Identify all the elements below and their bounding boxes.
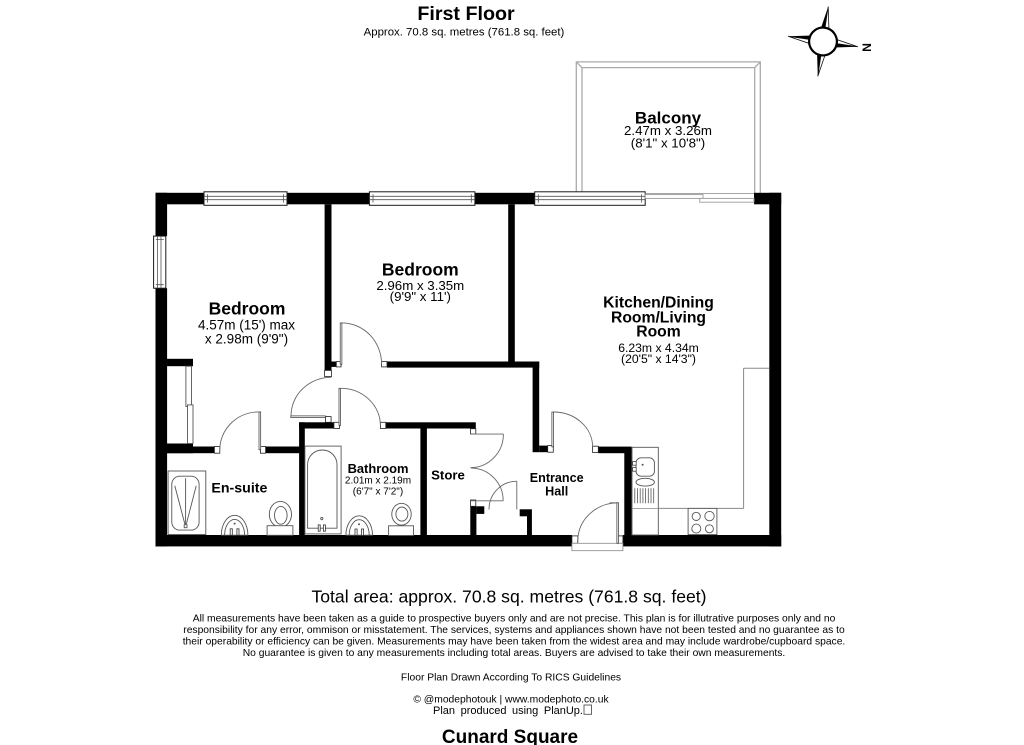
svg-text:Bathroom: Bathroom	[348, 461, 409, 476]
svg-text:All measurements have been tak: All measurements have been taken as a gu…	[193, 613, 836, 624]
svg-text:No guarantee is given to any m: No guarantee is given to any measurement…	[243, 648, 786, 659]
svg-text:En-suite: En-suite	[211, 481, 267, 497]
svg-text:Bedroom: Bedroom	[209, 299, 286, 319]
svg-text:Approx. 70.8 sq. metres (761.8: Approx. 70.8 sq. metres (761.8 sq. feet)	[364, 27, 565, 39]
svg-text:Entrance: Entrance	[530, 471, 584, 485]
svg-text:x 2.98m (9'9"): x 2.98m (9'9")	[205, 332, 288, 347]
svg-text:(9'9" x 11'): (9'9" x 11')	[390, 289, 451, 304]
svg-text:their operability or efficienc: their operability or efficiency can be g…	[183, 636, 846, 647]
svg-text:Store: Store	[431, 468, 465, 483]
svg-text:Plan produced using PlanUp.: Plan produced using PlanUp.	[433, 705, 583, 717]
svg-text:First Floor: First Floor	[417, 3, 515, 25]
svg-text:responsibility for any error,: responsibility for any error, ommison or…	[183, 625, 845, 636]
svg-text:© @modephotouk | www.modephoto: © @modephotouk | www.modephoto.co.uk	[413, 695, 609, 706]
svg-text:Bedroom: Bedroom	[382, 260, 459, 280]
svg-text:(20'5" x 14'3"): (20'5" x 14'3")	[621, 352, 696, 366]
svg-text:(6'7" x 7'2"): (6'7" x 7'2")	[353, 487, 403, 498]
svg-text:Total area: approx. 70.8 sq. m: Total area: approx. 70.8 sq. metres (761…	[311, 587, 706, 607]
svg-text:2.01m x 2.19m: 2.01m x 2.19m	[345, 476, 411, 487]
svg-text:Cunard Square: Cunard Square	[442, 727, 578, 745]
svg-text:Floor Plan Drawn According To: Floor Plan Drawn According To RICS Guide…	[401, 672, 621, 683]
svg-text:N: N	[859, 43, 873, 52]
svg-text:(8'1" x 10'8"): (8'1" x 10'8")	[631, 136, 705, 151]
svg-text:Hall: Hall	[545, 485, 568, 499]
svg-text:4.57m (15') max: 4.57m (15') max	[198, 318, 295, 333]
svg-text:Room: Room	[636, 324, 680, 341]
